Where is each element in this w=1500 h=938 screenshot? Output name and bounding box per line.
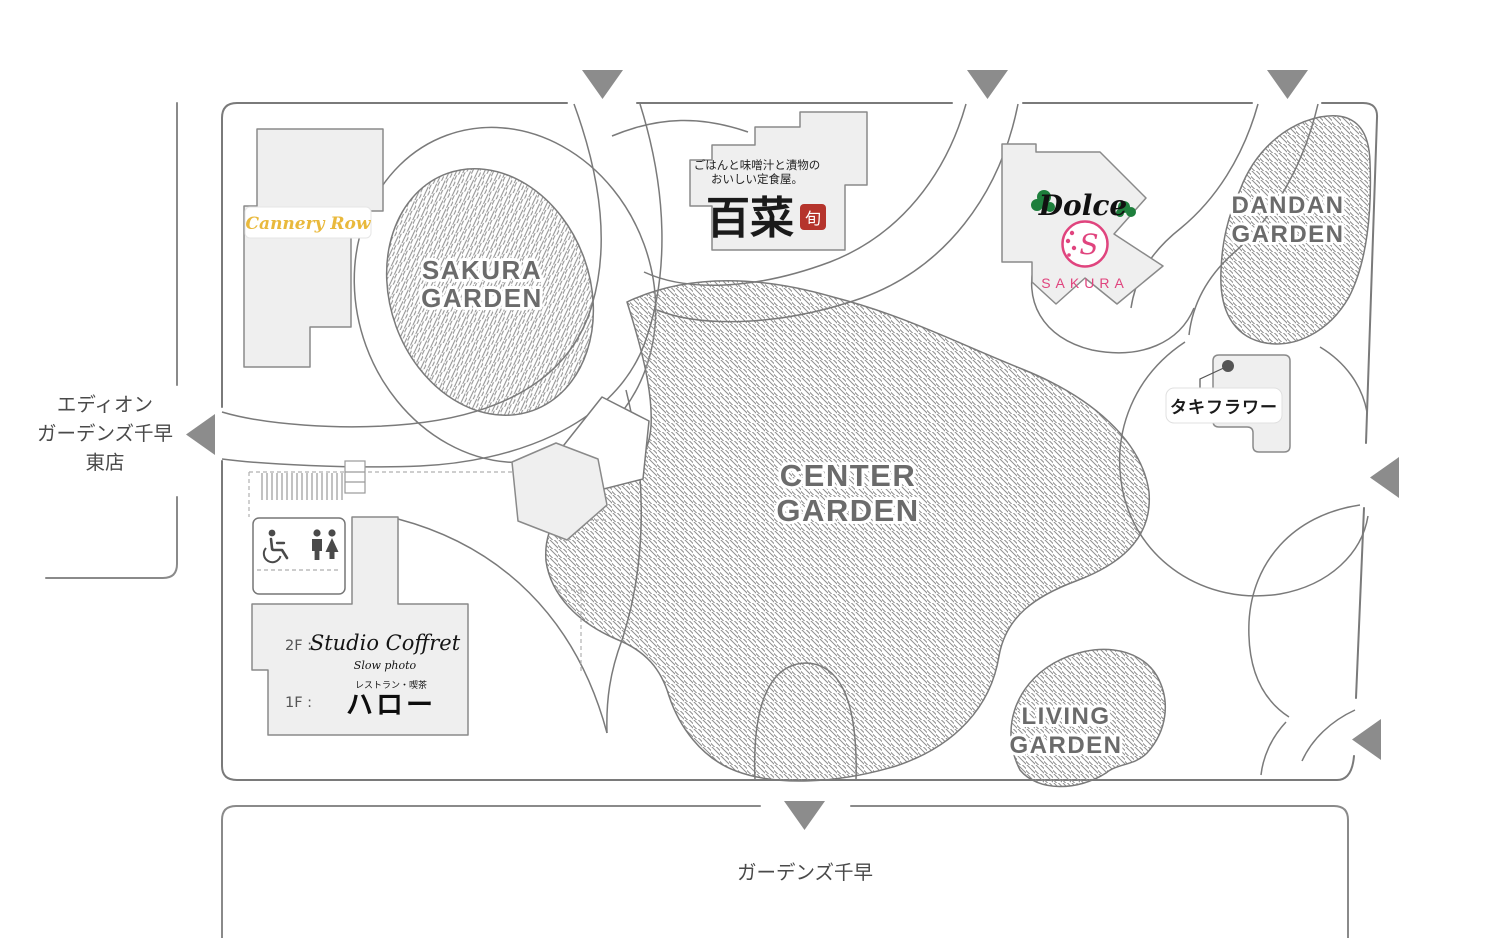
dandan-garden-label-line1: DANDAN — [1232, 192, 1345, 219]
restroom-box — [253, 518, 345, 594]
svg-text:S: S — [1079, 228, 1098, 261]
entrance-arrow-west-icon — [186, 414, 215, 455]
svg-text:SAKURA: SAKURA — [1041, 275, 1129, 291]
svg-text:おいしい定食屋。: おいしい定食屋。 — [711, 172, 803, 186]
edion-label-line1: エディオン — [57, 393, 153, 416]
entrance-arrow-top-1-icon — [582, 70, 623, 99]
svg-text:Slow photo: Slow photo — [354, 659, 417, 672]
living-garden-label-line2: GARDEN — [1009, 732, 1122, 759]
dandan-garden-label-line2: GARDEN — [1231, 221, 1344, 248]
svg-text:Dolce: Dolce — [1038, 189, 1127, 222]
svg-text:ごはんと味噌汁と漬物の: ごはんと味噌汁と漬物の — [694, 158, 821, 172]
svg-text:旬: 旬 — [805, 209, 821, 228]
edion-label-line3: 東店 — [85, 451, 124, 474]
gardens-chihaya-label: ガーデンズ千早 — [737, 861, 873, 884]
site-map: SAKURA GARDEN CENTER GARDEN DANDAN GARDE… — [0, 0, 1500, 938]
edion-boundary-line-bottom — [46, 497, 177, 578]
center-garden-label-line1: CENTER — [780, 458, 916, 493]
svg-text:百菜: 百菜 — [706, 193, 794, 244]
svg-text:1F :: 1F : — [285, 695, 312, 711]
entrance-arrow-south-icon — [784, 801, 825, 830]
living-garden-label-line1: LIVING — [1021, 703, 1110, 730]
entrance-arrow-east-2-icon — [1352, 719, 1381, 760]
svg-text:ハロー: ハロー — [346, 690, 436, 721]
svg-text:Cannery Row: Cannery Row — [246, 214, 372, 234]
entrance-arrow-top-2-icon — [967, 70, 1008, 99]
stairs-block — [345, 461, 365, 493]
svg-text:2F :: 2F : — [285, 638, 312, 654]
entrance-arrow-top-3-icon — [1267, 70, 1308, 99]
store-logo-cannery-row: Cannery Row — [245, 207, 372, 238]
sakura-garden-label-line2: GARDEN — [421, 283, 543, 313]
store-logo-dolce: Dolce — [1031, 189, 1136, 222]
building-cannery-row — [244, 129, 383, 367]
svg-text:タキフラワー: タキフラワー — [1170, 398, 1278, 418]
parking-stalls — [262, 473, 342, 500]
entrance-arrow-east-1-icon — [1370, 457, 1399, 498]
center-garden-label-line2: GARDEN — [776, 493, 919, 528]
south-block-right — [851, 806, 1348, 938]
svg-text:Studio Coffret: Studio Coffret — [310, 631, 461, 655]
south-block-left — [222, 806, 760, 938]
edion-label-line2: ガーデンズ千早 — [37, 422, 173, 445]
sakura-garden-label-line1: SAKURA — [422, 255, 542, 285]
